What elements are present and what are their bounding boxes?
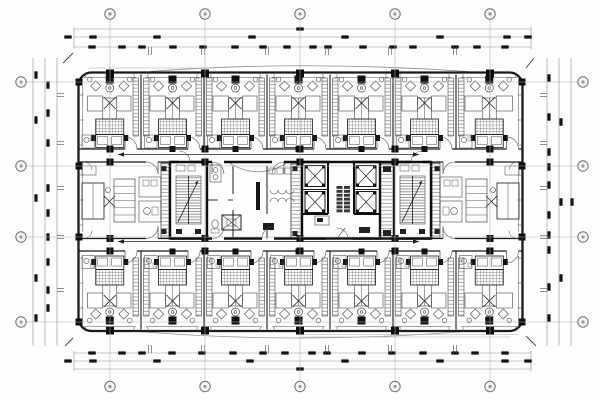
grid-bubble [105,9,115,19]
grid-bubble [578,232,588,242]
floor-plan-drawing [0,0,600,400]
grid-bubble [578,77,588,87]
grid-bubble [295,9,305,19]
grid-bubble [578,161,588,171]
grid-bubble [485,9,495,19]
grid-bubble [390,9,400,19]
floor-plan-page [0,0,600,400]
grid-bubble [16,232,26,242]
grid-bubble [295,381,305,391]
grid-bubble [578,317,588,327]
grid-bubble [485,381,495,391]
grid-bubble [390,381,400,391]
grid-bubble [105,381,115,391]
grid-bubble [200,9,210,19]
grid-bubble [200,381,210,391]
grid-bubble [16,77,26,87]
grid-bubble [16,161,26,171]
grid-bubble [16,317,26,327]
